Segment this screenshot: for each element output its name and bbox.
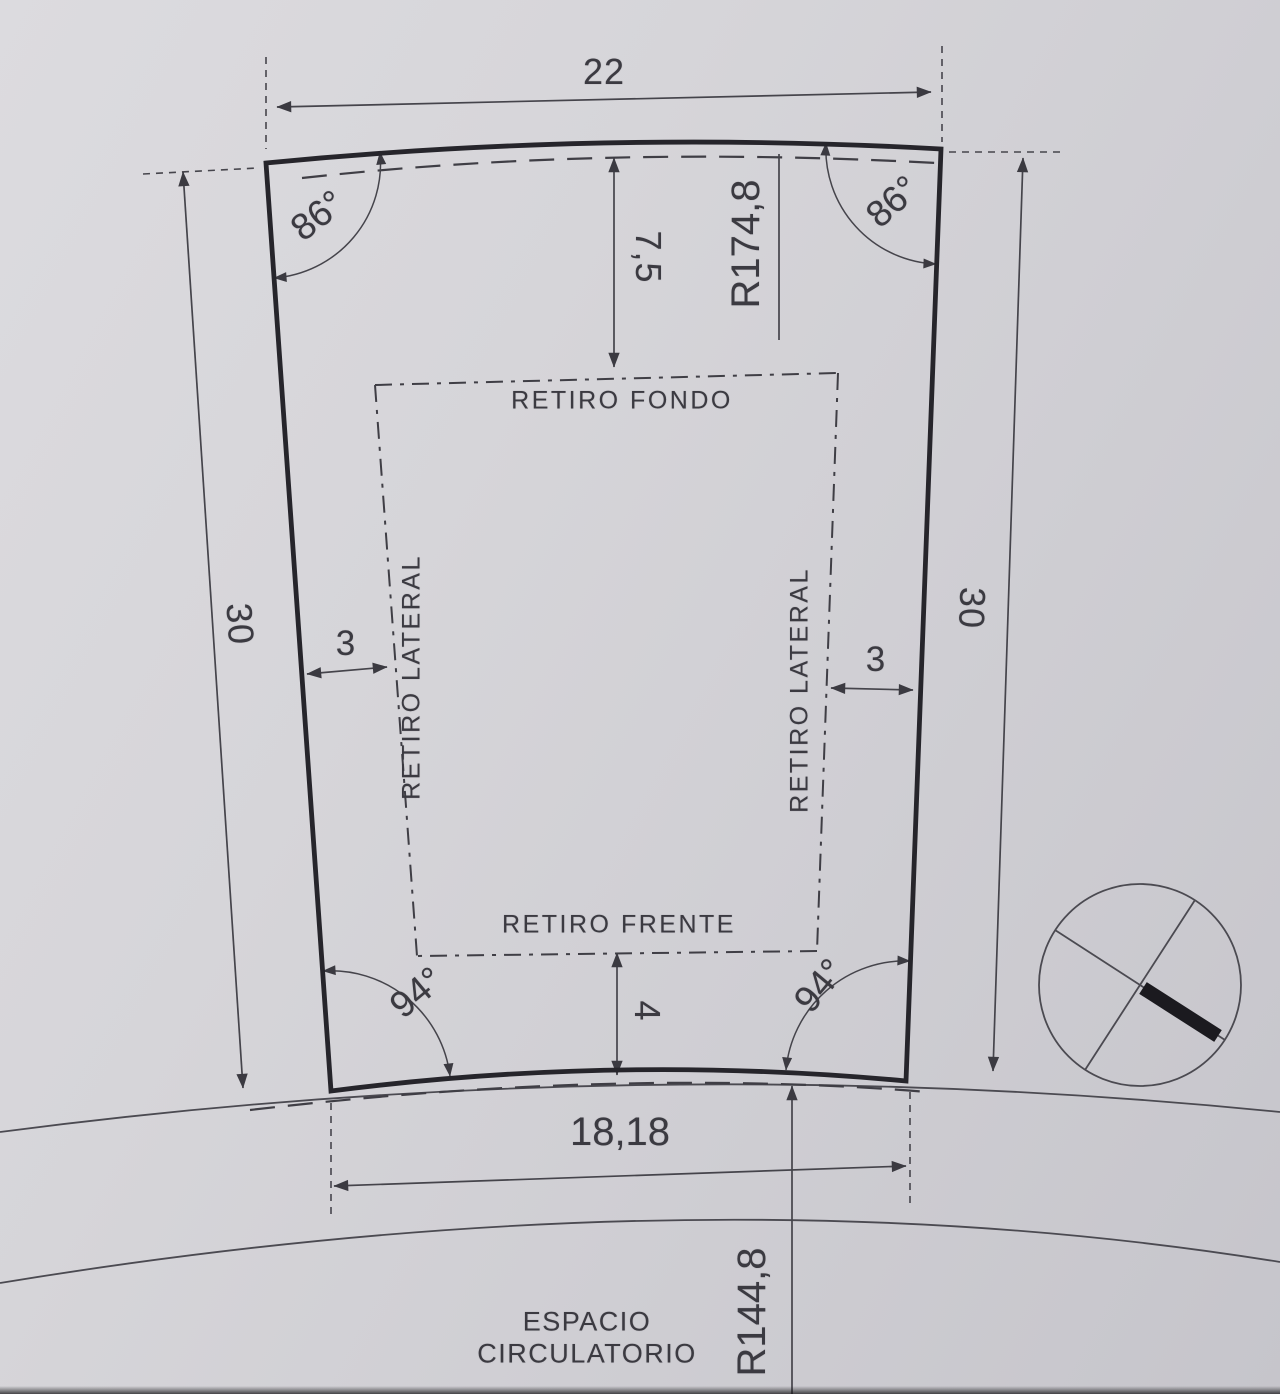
road-space-label: ESPACIO CIRCULATORIO <box>477 1306 697 1371</box>
dim-line-3-left <box>307 667 387 674</box>
ext-line-30-left <box>143 168 258 174</box>
dim-right-setback: 3 <box>866 641 886 680</box>
dim-line-3-right <box>831 688 913 690</box>
lot-boundary <box>266 142 941 1091</box>
dim-line-30-right <box>993 158 1023 1071</box>
setback-line-rear <box>375 373 838 385</box>
dim-left-setback: 3 <box>336 625 356 664</box>
site-plan-photo: 22 30 30 18,18 7,5 R174,8 R144,8 86° 86°… <box>0 0 1280 1394</box>
dim-top-width: 22 <box>583 52 625 92</box>
left-setback-label: RETIRO LATERAL <box>398 554 426 800</box>
rear-boundary-dashed-arc <box>302 157 936 178</box>
radius-rear-label: R174,8 <box>724 180 768 309</box>
site-plan-drawing <box>0 0 1280 1394</box>
road-edge-arc-far <box>0 1220 1280 1283</box>
right-setback-label: RETIRO LATERAL <box>786 567 814 813</box>
dim-front-width: 18,18 <box>570 1110 670 1154</box>
radius-front-label: R144,8 <box>730 1248 774 1377</box>
road-space-label-line1: ESPACIO <box>477 1306 697 1338</box>
north-symbol-icon <box>1039 884 1241 1086</box>
dim-line-18-18 <box>334 1166 906 1186</box>
rear-setback-label: RETIRO FONDO <box>511 387 733 415</box>
dim-line-22 <box>277 92 931 107</box>
dim-left-depth: 30 <box>219 602 261 647</box>
setback-line-right <box>817 373 838 951</box>
dim-front-setback: 4 <box>627 1000 667 1021</box>
setback-rectangle <box>375 373 838 956</box>
road-space-label-line2: CIRCULATORIO <box>477 1338 697 1370</box>
dim-right-depth: 30 <box>951 586 992 629</box>
front-setback-label: RETIRO FRENTE <box>502 911 736 939</box>
north-symbol-bar <box>1143 988 1218 1036</box>
dim-rear-setback: 7,5 <box>628 230 668 283</box>
